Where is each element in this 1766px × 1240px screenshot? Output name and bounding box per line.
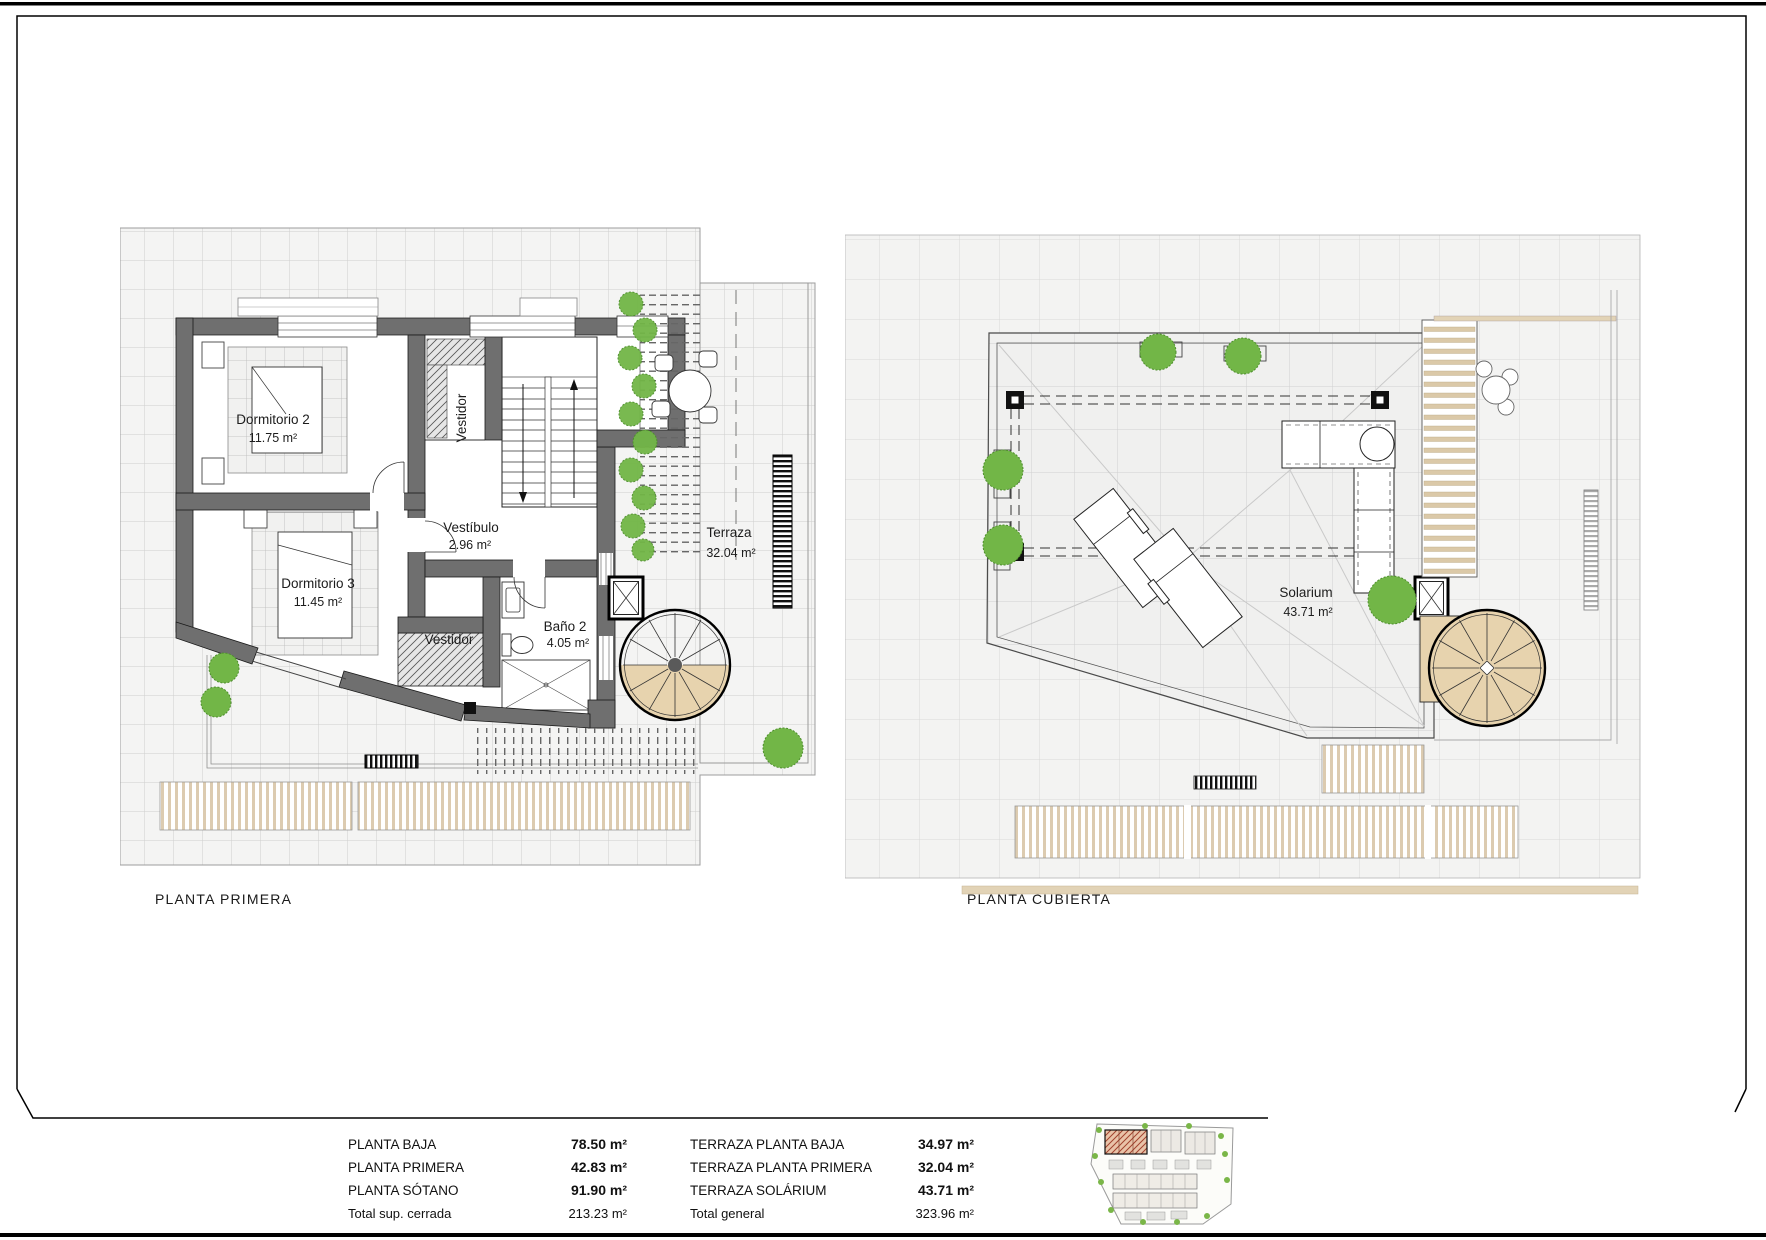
room-label-vestidor-top: Vestidor xyxy=(454,393,469,442)
room-area-dormitorio3: 11.45 m² xyxy=(294,595,342,609)
deck-boards xyxy=(358,782,690,830)
summary-value: 91.90 m² xyxy=(480,1182,627,1198)
staircase xyxy=(502,337,597,507)
summary-value-total: 323.96 m² xyxy=(820,1206,974,1221)
room-area-terraza: 32.04 m² xyxy=(706,546,755,560)
spiral-staircase xyxy=(620,610,730,720)
summary-label-total: Total general xyxy=(690,1206,764,1221)
summary-value: 43.71 m² xyxy=(820,1182,974,1198)
room-area-dormitorio2: 11.75 m² xyxy=(249,431,297,445)
summary-label: PLANTA SÓTANO xyxy=(348,1183,459,1198)
elevator-icon xyxy=(609,577,643,619)
drawing-sheet: Dormitorio 2 11.75 m² Dormitorio 3 11.45… xyxy=(0,0,1766,1240)
bench xyxy=(365,755,418,768)
room-label-terraza: Terraza xyxy=(706,525,752,540)
bench-grill xyxy=(773,455,792,608)
corner-post xyxy=(464,702,476,714)
deck-boards xyxy=(1015,806,1518,858)
room-label-solarium: Solarium xyxy=(1279,585,1332,600)
summary-label: TERRAZA SOLÁRIUM xyxy=(690,1183,827,1198)
summary-label: PLANTA PRIMERA xyxy=(348,1160,464,1175)
summary-value: 78.50 m² xyxy=(480,1136,627,1152)
toilet xyxy=(511,637,533,654)
summary-value: 34.97 m² xyxy=(820,1136,974,1152)
highlighted-unit xyxy=(1105,1130,1147,1154)
room-area-vestibulo: 2.96 m² xyxy=(449,538,491,552)
site-plan-thumbnail xyxy=(1085,1120,1245,1230)
room-area-bano2: 4.05 m² xyxy=(547,636,589,650)
floor-plan-planta-primera: Dormitorio 2 11.75 m² Dormitorio 3 11.45… xyxy=(120,226,820,906)
room-area-solarium: 43.71 m² xyxy=(1283,605,1332,619)
louver-slats xyxy=(470,728,700,774)
elevator-icon xyxy=(1415,577,1448,619)
deck-boards xyxy=(1322,745,1424,793)
bench-grill xyxy=(1584,490,1598,610)
room-label-bano2: Baño 2 xyxy=(544,619,587,634)
bench xyxy=(1194,776,1256,789)
deck-seam xyxy=(1425,805,1431,859)
summary-label: PLANTA BAJA xyxy=(348,1137,436,1152)
round-table xyxy=(1360,427,1394,461)
summary-value: 42.83 m² xyxy=(480,1159,627,1175)
sink xyxy=(502,582,524,618)
room-label-dormitorio3: Dormitorio 3 xyxy=(281,576,355,591)
summary-label-total: Total sup. cerrada xyxy=(348,1206,451,1221)
deck-seam xyxy=(1184,805,1191,859)
toilet-tank xyxy=(502,634,511,656)
summary-value: 32.04 m² xyxy=(820,1159,974,1175)
plan-title-planta-cubierta: PLANTA CUBIERTA xyxy=(967,891,1111,907)
room-label-vestibulo: Vestíbulo xyxy=(443,520,499,535)
room-label-dormitorio2: Dormitorio 2 xyxy=(236,412,310,427)
floor-plan-planta-cubierta: Solarium 43.71 m² xyxy=(845,226,1645,906)
plan-title-planta-primera: PLANTA PRIMERA xyxy=(155,891,292,907)
deck-boards xyxy=(160,782,352,830)
summary-value-total: 213.23 m² xyxy=(480,1206,627,1221)
room-label-vestidor-bottom: Vestidor xyxy=(425,632,474,647)
